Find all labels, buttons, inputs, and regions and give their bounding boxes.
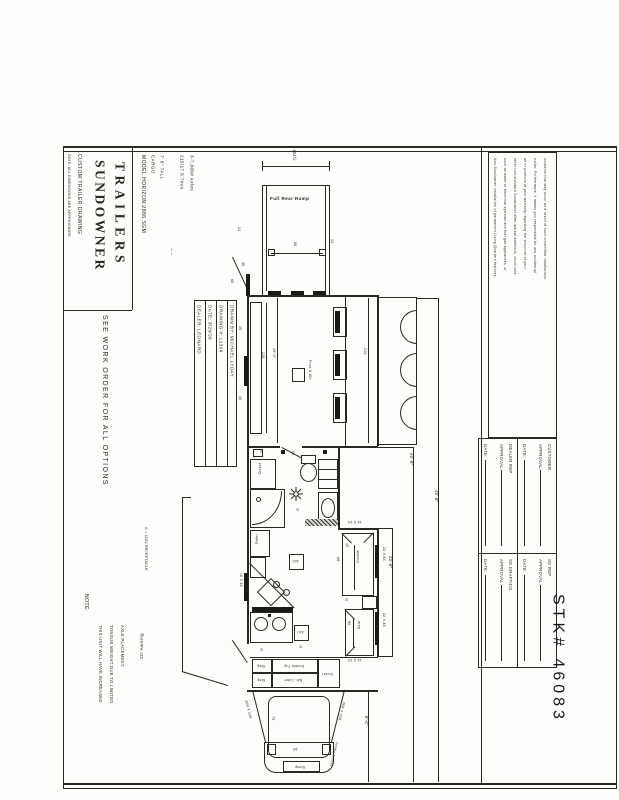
- sd-drafting-who: SD DRAFTING: [507, 559, 512, 591]
- bath-right-wall: [338, 446, 340, 529]
- signature-line: [501, 585, 502, 661]
- sofa-label: Sofa: [357, 621, 361, 629]
- spec-axles: 3-7,000# Axles: [189, 155, 194, 191]
- receptacle-icon: ⊙: [345, 598, 349, 603]
- signature-line: [485, 575, 486, 661]
- ramp-length-dim: 104½: [291, 149, 296, 161]
- customer-approval-who: CUSTOMER: [546, 444, 551, 470]
- rear-wall: [247, 295, 378, 297]
- scanned-trailer-drawing-sheet: NOTE: ALL DIMENSIONS ARE APPROXIMATE CUS…: [0, 0, 619, 800]
- linen-cabinet: [318, 459, 338, 489]
- sd-drafting-approval-label: APPROVAL:: [498, 559, 503, 585]
- overall-dim-1: 40'-8": [408, 453, 413, 465]
- dealer-rep-who: DEALER REP: [507, 444, 512, 474]
- frame-bottom-line: [63, 783, 617, 785]
- title-block-divider-v: [132, 146, 133, 310]
- dinette-window-label: 22 X 48: [381, 547, 385, 561]
- overall-dim-line-2: [438, 298, 439, 782]
- custom-trailer-drawing-label: CUSTOM TRAILER DRAWING: [75, 154, 81, 234]
- stock-number-handwritten: STK# 46083: [548, 594, 566, 723]
- sump-label: Sump: [295, 764, 305, 768]
- kitchen-sink-bowl: [254, 617, 268, 631]
- wall-jog: [338, 528, 378, 530]
- customer-approval-date: DATE:: [521, 444, 526, 458]
- wall-mark: [323, 450, 327, 454]
- gooseneck-window-left-label: 36R X 22R: [243, 700, 251, 720]
- cargo-cabinet-window: [335, 397, 340, 419]
- spec-tires: 215/17.5 Tires: [179, 155, 184, 190]
- table-date: DATE: 3/20/26: [207, 305, 212, 340]
- step-label: Step: [257, 677, 265, 681]
- linen-shelf-line: [318, 469, 338, 470]
- ramp-rail: [262, 185, 263, 295]
- see-work-order-note: SEE WORK ORDER FOR ALL OPTIONS: [100, 315, 108, 486]
- side-door-dim-60: 60: [230, 279, 234, 283]
- disclaimer-line-3: other non-standard Sundowner after-marke…: [512, 158, 516, 275]
- table-drawing-number: DRAWING #: L1314: [218, 305, 223, 353]
- ac-unit-1-label: A/C: [292, 559, 299, 563]
- title-block-divider-h: [63, 310, 132, 311]
- cargo-length-dim: 19'-0": [272, 348, 276, 358]
- gooseneck-window-right-label: 36R X 22R: [337, 701, 345, 721]
- cargo-dim-line: [277, 298, 278, 443]
- tire-fender: [400, 396, 417, 430]
- bath-door-dim: 32: [290, 451, 294, 455]
- customer-approval-label: APPROVAL:: [537, 444, 542, 470]
- ramp-dim-line: [262, 166, 330, 167]
- lq-length-dim: 20'-8": [387, 556, 392, 568]
- awning-label: 20' Awning: [139, 633, 144, 659]
- refrigerator: [250, 530, 270, 557]
- dimensions-approximate-note: NOTE: ALL DIMENSIONS ARE APPROXIMATE: [66, 154, 70, 237]
- sd-rep-date: DATE:: [521, 559, 526, 573]
- dim-ext-tick: [378, 656, 392, 657]
- cross-wall-bath: [302, 446, 378, 448]
- gooseneck-length-dim: 8'-0": [363, 716, 368, 726]
- cargo-counter: [250, 302, 262, 434]
- sofa-window: [375, 612, 379, 645]
- signature-line: [524, 460, 525, 546]
- note-line-2: TONGUE WEIGHT DUE TO LIMITED: [108, 625, 113, 704]
- vanity-sink: [321, 498, 335, 518]
- toilet-bowl: [300, 463, 317, 482]
- axle-dim-line: [368, 298, 369, 443]
- dinette-table-line: [354, 545, 355, 590]
- bed-dim-60: 60: [293, 747, 297, 751]
- sd-drafting-date: DATE:: [482, 559, 487, 573]
- wall-vent: [253, 449, 263, 457]
- side-door-dim-36: 36: [241, 262, 245, 266]
- bath-closet: [250, 459, 276, 489]
- dim-ext-tick: [378, 447, 413, 448]
- disclaimer-line-2: such as water or electrical systems and …: [502, 158, 506, 271]
- disclaimer-line-6: incidents that may occur as a result of …: [542, 158, 546, 281]
- side-door-jamb: [246, 274, 250, 296]
- table-grid-line: [216, 300, 217, 467]
- gooseneck-closet-label: Closet: [322, 671, 333, 675]
- counter-dim: 228: [261, 352, 265, 359]
- lq-window-label: 14 X 24: [348, 658, 362, 662]
- awning-line: [182, 497, 183, 672]
- left-wall: [247, 295, 249, 657]
- cargo-cabinet-window: [335, 311, 340, 333]
- rear-opening-dim: 60: [293, 242, 297, 246]
- ac-unit-2-label: A/C: [297, 630, 304, 634]
- dealer-rep-date: DATE:: [482, 444, 487, 458]
- table-dealer: DEALER: LEONARD: [196, 305, 201, 354]
- sofa-dim-60: 60: [347, 621, 351, 625]
- receptacle-icon: ⊙: [299, 645, 303, 650]
- bath-threshold: [305, 519, 338, 526]
- cargo-window-dim-a: 40: [238, 326, 242, 330]
- right-wall-cargo: [377, 295, 379, 446]
- sd-rep-who: SD REP: [546, 559, 551, 576]
- signature-line: [540, 585, 541, 661]
- overall-dim-2: 45'-8": [433, 490, 438, 502]
- sd-rep-approval-label: APPROVAL:: [537, 559, 542, 585]
- rear-opening-dim-line: [271, 253, 323, 254]
- disclaimer-line-1: Non-Sundowner installation of permanent …: [492, 158, 496, 278]
- brand-name-line2: TRAILERS: [112, 162, 128, 267]
- receptacle-icon: ⊙: [260, 648, 264, 653]
- approvals-divider-h: [478, 553, 557, 554]
- dim-ext-tick: [417, 298, 438, 299]
- ramp-end-line: [262, 185, 330, 186]
- signature-line: [540, 470, 541, 546]
- receptacle-icon: ⊙: [296, 508, 300, 513]
- awning-tick-top: [182, 497, 191, 498]
- stove-burner: [273, 581, 280, 588]
- table-grid-line: [205, 300, 206, 467]
- bed-dim-75: 75: [271, 716, 275, 720]
- spec-blank: – –: [169, 248, 174, 256]
- shower-drain: [256, 497, 261, 502]
- note-line-3: AXLE PLACEMENT.: [119, 625, 124, 668]
- dinette-dim-40: 40: [345, 543, 349, 547]
- wall-mark: [281, 450, 285, 454]
- stove-burner: [283, 589, 290, 596]
- bath-closet-label: Closet: [258, 463, 262, 474]
- sofa-seat-line: [353, 618, 354, 648]
- tire-fender: [400, 353, 417, 387]
- dealer-rep-approval-label: APPROVAL:: [498, 444, 503, 470]
- lq-dim-line: [392, 528, 393, 657]
- model-line: MODEL HORIZON 2886 SGM: [139, 155, 145, 233]
- ramp-dim-tick: [329, 161, 330, 171]
- dinette-dim-68: 68: [336, 557, 340, 561]
- note-heading: NOTE:: [82, 594, 88, 612]
- overall-dim-line-1: [413, 447, 414, 782]
- awning-arm-line: [182, 671, 228, 686]
- sofa: [345, 609, 374, 656]
- rear-post: [319, 249, 326, 256]
- fender-tick: [378, 444, 416, 445]
- bath-window-label: 14 X 24: [348, 520, 362, 524]
- signature-line: [485, 460, 486, 546]
- kitchen-sink-bowl: [272, 617, 286, 631]
- rear-dim-12-right: 12: [330, 239, 334, 243]
- left-wall-window: [244, 356, 248, 386]
- note-line-1: THIS UNIT WILL HAVE INCREASED: [97, 625, 102, 703]
- spec-cargo: CARGO: [150, 155, 155, 174]
- signature-line: [501, 470, 502, 546]
- sofa-window-label: 22 X 48: [381, 613, 385, 627]
- frame-top-line: [63, 146, 617, 148]
- ceiling-fan-icon: [288, 486, 304, 502]
- sink-faucet: [268, 614, 271, 617]
- ramp-rail: [266, 185, 267, 291]
- dim-ext-tick: [346, 690, 368, 691]
- fuse-water-label: Fuse & Wtr: [307, 360, 311, 380]
- receptacle-legend: ⊙ = 110V RECEPTACLE: [144, 527, 148, 571]
- ramp-rail: [325, 185, 326, 291]
- ramp-label: Full Rear Ramp: [270, 196, 309, 201]
- double-top-label: Double Top: [284, 663, 304, 667]
- table-grid-line: [227, 300, 228, 467]
- brand-name-line1: SUNDOWNER: [92, 160, 108, 272]
- dim-ext-tick: [378, 528, 392, 529]
- signature-line: [524, 575, 525, 661]
- rear-post: [268, 249, 275, 256]
- cross-wall-bath: [247, 446, 280, 448]
- gooseneck-slant-left: [252, 690, 266, 743]
- frame-bottom-line-2: [63, 788, 617, 789]
- gooseneck-dim-line: [368, 690, 369, 782]
- cargo-cabinet-window: [335, 354, 340, 376]
- cargo-window-dim-b: 40: [238, 396, 242, 400]
- table-drawn-by: DRAWN BY: MICHAEL LYDAY: [229, 305, 234, 377]
- rear-dim-12-left: 12: [237, 227, 241, 231]
- end-table: [362, 596, 377, 609]
- kitchen-window-label: 16 X 36: [238, 573, 242, 587]
- dinette-label: Dinette: [356, 550, 360, 563]
- ramp-dim-tick: [262, 161, 263, 171]
- spec-height: 7' 8" TALL: [159, 155, 164, 180]
- disclaimer-line-4: all or portions of your warranty regardi…: [522, 158, 526, 269]
- step-label: Step: [257, 663, 265, 667]
- bal-counter-label: Bal. Cnter: [284, 677, 302, 681]
- frame-right-border: [616, 146, 617, 789]
- tire-fender: [400, 310, 417, 344]
- gooseneck-bed: [268, 696, 330, 758]
- fuse-water-box: [292, 368, 305, 382]
- linen-shelf-line: [318, 479, 338, 480]
- refrigerator-label: Refer: [256, 534, 260, 544]
- dinette-window: [375, 545, 379, 578]
- axle-area-dim: 240: [363, 348, 367, 355]
- stove-cooktop: [257, 578, 285, 606]
- disclaimer-line-5: trailer. Furthermore, it makes you respo…: [532, 158, 536, 273]
- counter-dim-line: [266, 303, 267, 433]
- fender-tick: [378, 297, 416, 298]
- kitchen-window: [244, 573, 248, 601]
- frame-left-border: [63, 146, 64, 789]
